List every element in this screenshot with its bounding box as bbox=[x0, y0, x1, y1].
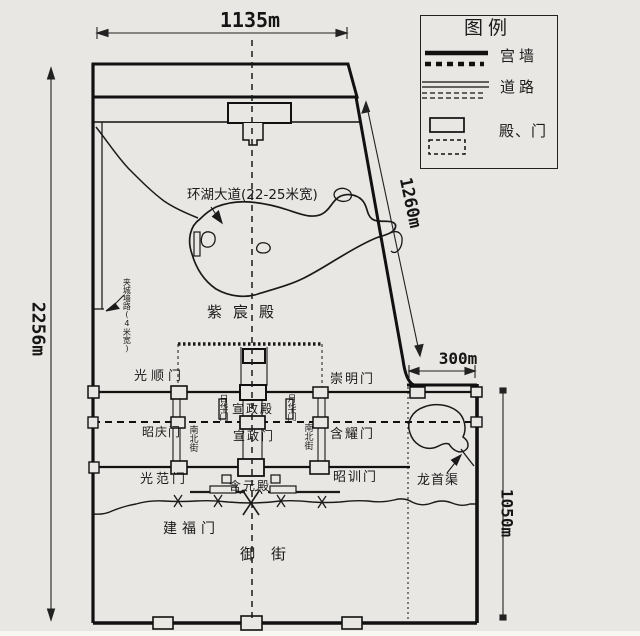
legend-item-hall: 殿、门 bbox=[499, 124, 547, 140]
label-lake-road: 环湖大道(22-25米宽) bbox=[187, 188, 318, 202]
dim-top-width: 1135m bbox=[220, 10, 280, 31]
label-imperial-street: 御街 bbox=[240, 547, 302, 563]
label-guangshun-gate: 光顺门 bbox=[134, 370, 185, 384]
dim-east-height: 1050m bbox=[498, 489, 515, 537]
label-rihua-gate: 日华门 bbox=[217, 394, 226, 421]
chongming-gate-rect bbox=[410, 387, 425, 398]
north-center-hall bbox=[228, 103, 291, 123]
lake-island-west bbox=[201, 232, 215, 247]
label-jianfu-gate: 建福门 bbox=[163, 522, 220, 537]
hanyao-gate-rect bbox=[313, 417, 328, 428]
lake-dock bbox=[194, 232, 200, 256]
lake-outline bbox=[96, 127, 402, 296]
label-zhaoqing-gate: 昭庆门 bbox=[142, 426, 181, 439]
legend-item-wall: 宫墙 bbox=[500, 49, 538, 65]
label-ns-street-east: 南北街 bbox=[302, 423, 311, 450]
xuanzheng-hall-rect bbox=[240, 385, 266, 400]
label-zichen-hall: 紫宸殿 bbox=[207, 305, 285, 321]
hanyuan-gate-rect bbox=[238, 459, 264, 476]
label-chongming-gate: 崇明门 bbox=[330, 373, 375, 387]
label-xuanzheng-hall: 宣政殿 bbox=[232, 403, 274, 416]
east-north-south-street bbox=[318, 392, 325, 467]
south-inner-wall bbox=[93, 490, 477, 515]
lake-island-east bbox=[257, 243, 271, 253]
jiacheng-inner-line bbox=[93, 122, 104, 309]
label-hanyao-gate: 含耀门 bbox=[330, 428, 375, 442]
label-ns-street-west: 南北街 bbox=[187, 425, 196, 452]
label-yuehua-gate: 月华门 bbox=[285, 394, 294, 421]
label-longshou-canal: 龙首渠 bbox=[417, 474, 459, 488]
legend-title: 图例 bbox=[464, 19, 512, 39]
south-wall-gate-center bbox=[241, 616, 262, 630]
dim-left-height: 2256m bbox=[28, 302, 47, 356]
zhaoxun-gate-rect bbox=[310, 461, 329, 474]
legend-hall-solid-rect bbox=[430, 118, 464, 132]
legend-hall-dashed-rect bbox=[429, 140, 465, 154]
zichen-hall-rect bbox=[243, 349, 265, 363]
bottom-paper-strip bbox=[0, 631, 640, 636]
palace-plan-map: 图例 宫墙 道路 殿、门 1135m 2256m 1260m 300m 1050… bbox=[0, 0, 640, 636]
dim-east-extension: 300m bbox=[439, 351, 478, 368]
south-wall-gate-west bbox=[153, 617, 173, 629]
south-wall-gate-east bbox=[342, 617, 362, 629]
label-guangfan-gate: 光范门 bbox=[140, 473, 188, 487]
label-hanyuan-hall: 含元殿 bbox=[229, 480, 271, 493]
label-zhaoxun-gate: 昭训门 bbox=[333, 471, 378, 485]
guangshun-gate-rect bbox=[171, 386, 187, 399]
northeast-diagonal-wall bbox=[356, 97, 414, 385]
label-xuanzheng-gate: 宣政门 bbox=[233, 430, 275, 443]
north-gate-tower bbox=[243, 123, 263, 145]
north-wall-band bbox=[93, 64, 357, 97]
label-jiacheng-note: 夹城墙路(4米宽) bbox=[122, 278, 130, 353]
legend-item-road: 道路 bbox=[500, 80, 538, 96]
longshou-canal-outline bbox=[409, 405, 474, 466]
